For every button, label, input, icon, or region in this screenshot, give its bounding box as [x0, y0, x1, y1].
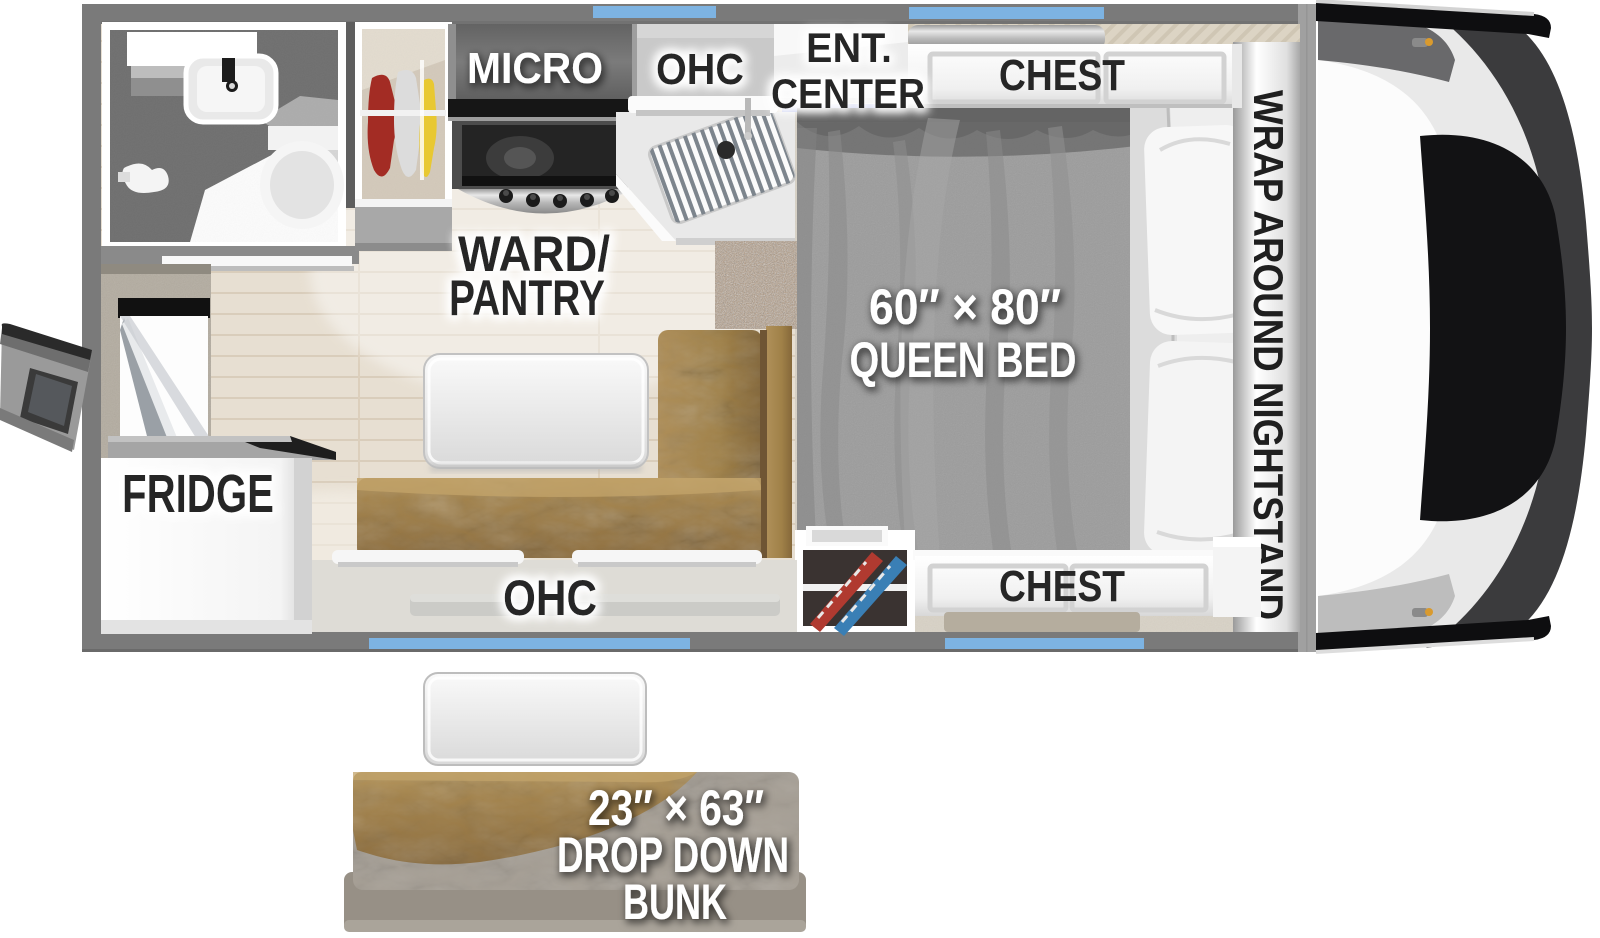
svg-text:CHEST: CHEST: [999, 562, 1125, 611]
svg-text:60″ × 80″: 60″ × 80″: [869, 279, 1061, 335]
svg-text:OHC: OHC: [656, 45, 744, 94]
svg-text:MICRO: MICRO: [467, 44, 603, 93]
svg-text:PANTRY: PANTRY: [449, 270, 605, 326]
svg-text:FRIDGE: FRIDGE: [122, 464, 274, 524]
svg-text:CHEST: CHEST: [999, 51, 1125, 100]
svg-text:CENTER: CENTER: [771, 70, 925, 117]
svg-text:QUEEN BED: QUEEN BED: [850, 332, 1077, 388]
svg-text:OHC: OHC: [503, 570, 597, 626]
svg-text:BUNK: BUNK: [623, 874, 727, 930]
svg-text:ENT.: ENT.: [806, 24, 892, 71]
